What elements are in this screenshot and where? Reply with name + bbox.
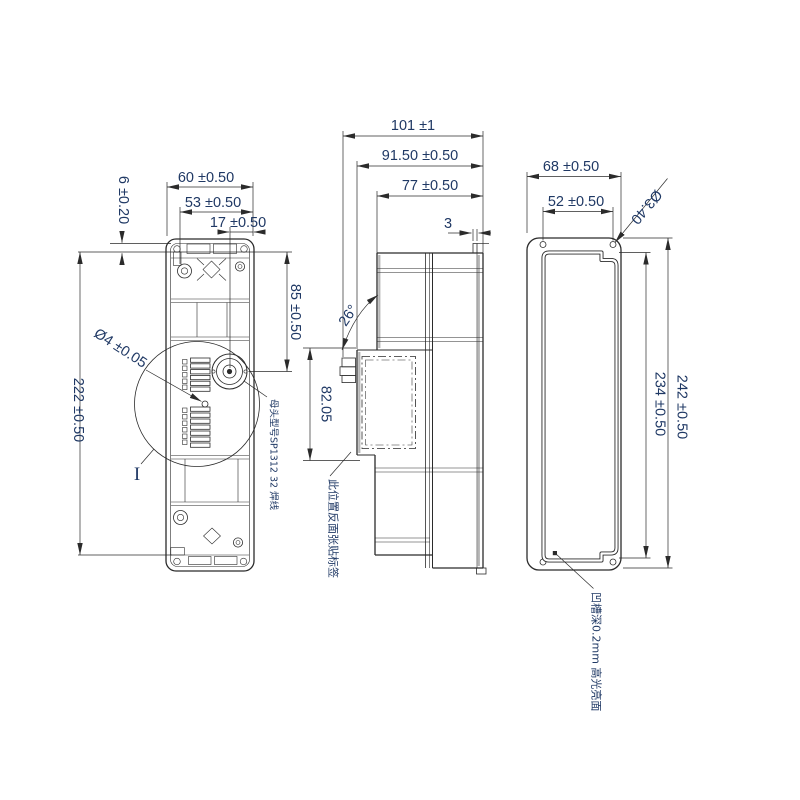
front-view: 60 ±0.50 53 ±0.50 17 ±0.50 6 ±0.20 222 ±… <box>70 170 303 571</box>
side-view-dimensions: 101 ±1 91.50 ±0.50 77 ±0.50 3 26° 82.05 … <box>303 118 491 578</box>
dim-back-hole-dia: Ø3.40 <box>627 186 665 227</box>
detail-view-label: I <box>134 464 140 485</box>
technical-drawing: 60 ±0.50 53 ±0.50 17 ±0.50 6 ±0.20 222 ±… <box>0 0 800 800</box>
dim-side-tab-thickness: 3 <box>444 216 452 232</box>
dim-side-depth-body: 91.50 ±0.50 <box>382 148 459 164</box>
dim-front-width-outer: 60 ±0.50 <box>178 170 234 186</box>
dim-back-hole-spacing: 52 ±0.50 <box>548 194 604 210</box>
side-view-ribs <box>375 269 483 543</box>
label-position-note: 此位置反面张贴标签 <box>327 479 341 578</box>
dim-front-top-offset: 6 ±0.20 <box>115 176 131 224</box>
back-view-outline <box>527 238 621 570</box>
groove-depth-note: 凹槽深0.2mm 高光亮面 <box>590 592 604 711</box>
dim-back-height-outer: 242 ±0.50 <box>674 375 690 439</box>
dim-side-angle: 26° <box>336 302 362 329</box>
side-view-outline <box>357 244 489 575</box>
dim-back-width-outer: 68 ±0.50 <box>543 159 599 175</box>
dim-front-connector-height: 85 ±0.50 <box>287 284 303 340</box>
dim-front-hole-dia: Ø4 ±0.05 <box>91 326 150 372</box>
back-view: 68 ±0.50 52 ±0.50 Ø3.40 242 ±0.50 234 ±0… <box>527 159 690 711</box>
dim-front-height: 222 ±0.50 <box>70 378 86 442</box>
dim-side-label-area-height: 82.05 <box>318 386 334 422</box>
side-terminal-block <box>340 358 356 383</box>
side-view: 101 ±1 91.50 ±0.50 77 ±0.50 3 26° 82.05 … <box>303 118 491 578</box>
dim-back-height-groove: 234 ±0.50 <box>652 372 668 436</box>
connector-model-note: 母头型号SP1312 32 焊线 <box>268 399 280 511</box>
dim-side-depth-inner: 77 ±0.50 <box>402 178 458 194</box>
front-view-outline <box>166 239 254 571</box>
dim-front-width-inner: 53 ±0.50 <box>185 195 241 211</box>
dim-front-connector-offset: 17 ±0.50 <box>210 215 266 231</box>
label-recess-phantom <box>362 357 416 449</box>
drawing-page: 60 ±0.50 53 ±0.50 17 ±0.50 6 ±0.20 222 ±… <box>0 0 800 800</box>
dim-side-depth-overall: 101 ±1 <box>391 118 435 134</box>
